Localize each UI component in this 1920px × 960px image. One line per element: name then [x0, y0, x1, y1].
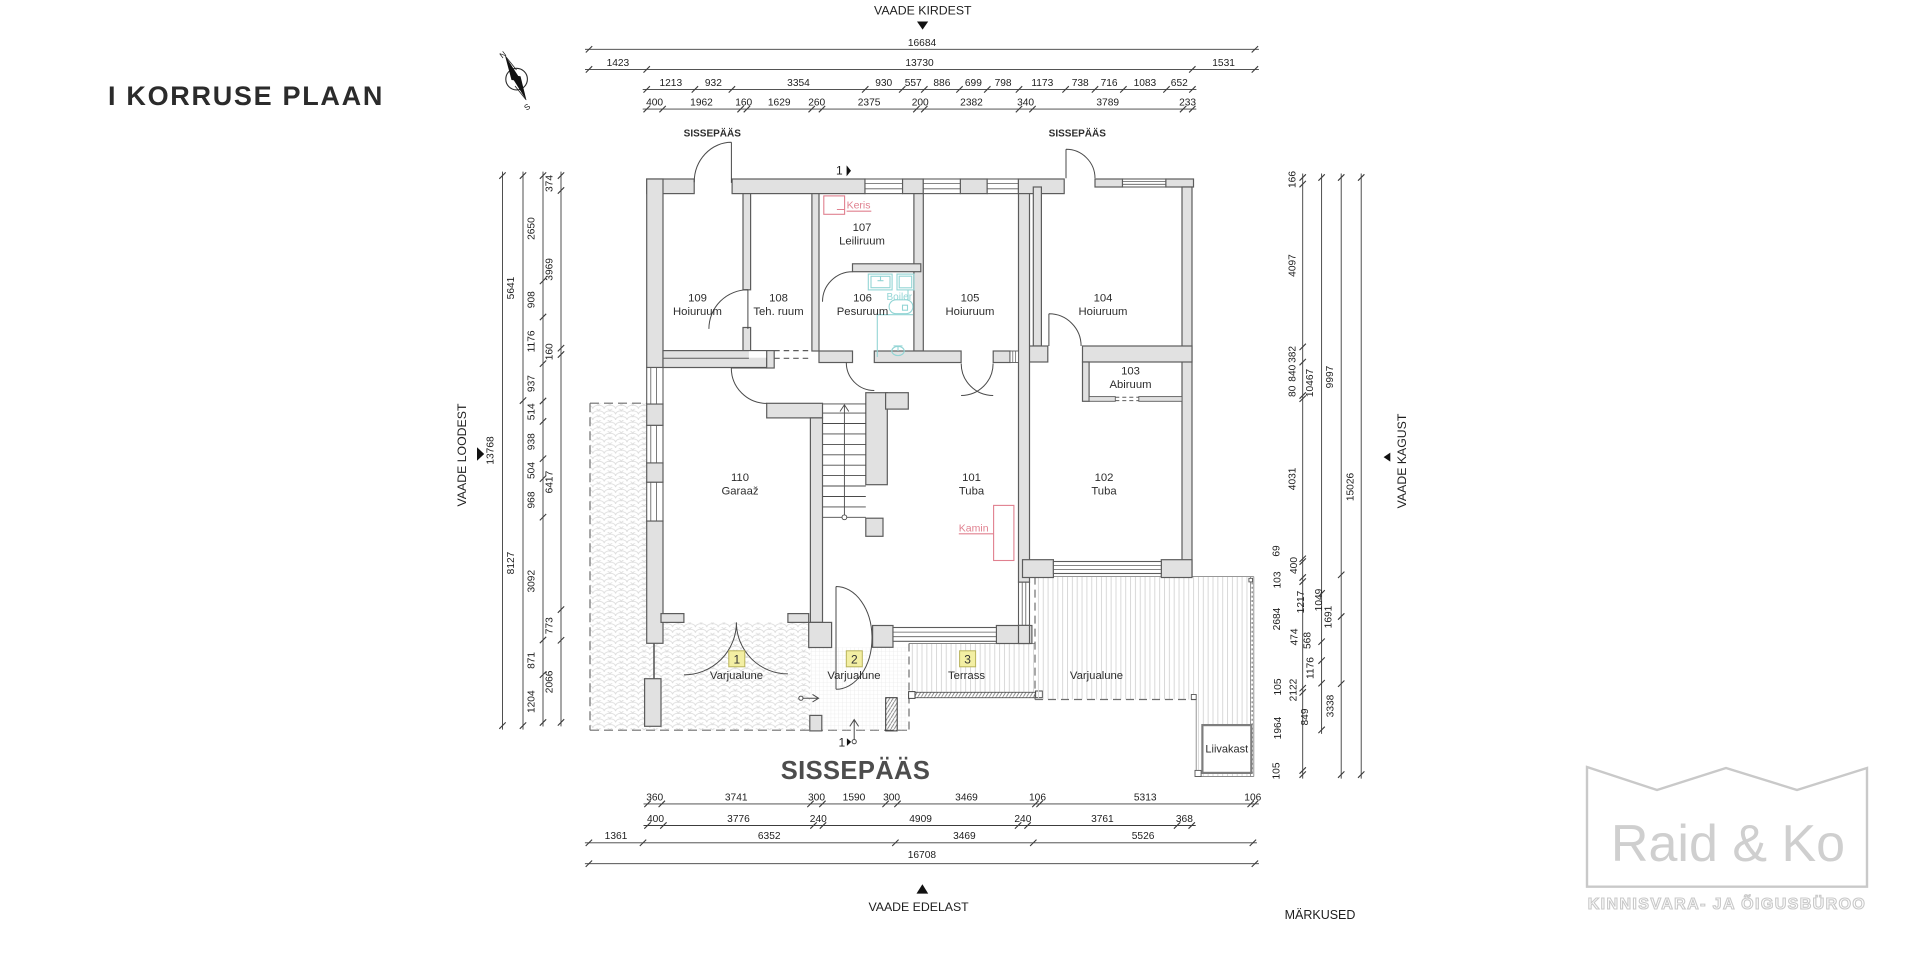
svg-text:160: 160 — [545, 343, 556, 360]
svg-text:Varjualune: Varjualune — [827, 670, 880, 682]
svg-text:VAADE KIRDEST: VAADE KIRDEST — [874, 4, 972, 18]
svg-text:Varjualune: Varjualune — [1070, 670, 1123, 682]
svg-text:2122: 2122 — [1289, 678, 1300, 701]
svg-text:240: 240 — [810, 814, 827, 825]
svg-text:Pesuruum: Pesuruum — [837, 306, 889, 318]
svg-text:Terrass: Terrass — [948, 670, 985, 682]
svg-text:908: 908 — [527, 291, 538, 308]
svg-text:382: 382 — [1288, 346, 1299, 363]
svg-text:4909: 4909 — [909, 814, 932, 825]
svg-text:504: 504 — [527, 462, 538, 479]
svg-text:368: 368 — [1176, 814, 1193, 825]
svg-text:160: 160 — [735, 98, 752, 109]
svg-text:4097: 4097 — [1288, 254, 1299, 277]
svg-text:938: 938 — [527, 433, 538, 450]
svg-text:105: 105 — [961, 293, 980, 305]
svg-text:5641: 5641 — [506, 276, 517, 299]
svg-text:1962: 1962 — [690, 98, 713, 109]
svg-text:6417: 6417 — [545, 470, 556, 493]
svg-text:Kamin: Kamin — [959, 522, 989, 534]
svg-text:1590: 1590 — [843, 792, 866, 803]
svg-text:103: 103 — [1273, 571, 1284, 588]
svg-text:106: 106 — [1244, 792, 1261, 803]
svg-text:3469: 3469 — [955, 792, 978, 803]
svg-text:Keris: Keris — [847, 199, 871, 211]
svg-text:871: 871 — [527, 652, 538, 669]
svg-text:VAADE EDELAST: VAADE EDELAST — [868, 900, 969, 914]
svg-text:Raid & Ko: Raid & Ko — [1611, 815, 1845, 873]
svg-text:S: S — [522, 102, 532, 112]
svg-text:3741: 3741 — [725, 792, 748, 803]
svg-text:937: 937 — [527, 375, 538, 392]
svg-text:400: 400 — [647, 814, 664, 825]
svg-text:798: 798 — [995, 78, 1012, 89]
svg-text:300: 300 — [808, 792, 825, 803]
svg-text:557: 557 — [905, 78, 922, 89]
svg-text:69: 69 — [1272, 545, 1283, 557]
svg-text:Abiruum: Abiruum — [1109, 379, 1151, 391]
svg-text:SISSEPÄÄS: SISSEPÄÄS — [781, 757, 931, 785]
svg-text:3092: 3092 — [527, 570, 538, 593]
svg-text:474: 474 — [1290, 628, 1301, 645]
svg-text:2382: 2382 — [960, 98, 983, 109]
svg-text:6352: 6352 — [758, 831, 781, 842]
svg-text:300: 300 — [883, 792, 900, 803]
svg-text:VAADE KAGUST: VAADE KAGUST — [1395, 413, 1409, 508]
svg-text:2684: 2684 — [1272, 607, 1283, 630]
svg-text:MÄRKUSED: MÄRKUSED — [1285, 908, 1356, 922]
svg-text:652: 652 — [1171, 78, 1188, 89]
svg-text:Tuba: Tuba — [1091, 486, 1117, 498]
svg-text:9997: 9997 — [1325, 365, 1336, 388]
svg-text:514: 514 — [527, 403, 538, 420]
svg-text:233: 233 — [1179, 98, 1196, 109]
svg-text:3: 3 — [964, 652, 971, 666]
svg-text:Boiler: Boiler — [887, 292, 913, 303]
svg-text:109: 109 — [688, 293, 707, 305]
svg-text:1176: 1176 — [1306, 657, 1317, 679]
svg-text:10467: 10467 — [1305, 369, 1316, 398]
svg-text:Leiliruum: Leiliruum — [839, 236, 885, 248]
svg-text:840: 840 — [1288, 364, 1299, 381]
svg-text:400: 400 — [646, 98, 663, 109]
svg-text:3761: 3761 — [1091, 814, 1114, 825]
svg-text:1204: 1204 — [527, 690, 538, 713]
svg-text:Garaaž: Garaaž — [721, 486, 758, 498]
svg-text:2066: 2066 — [545, 670, 556, 693]
svg-text:103: 103 — [1121, 366, 1140, 378]
svg-text:3338: 3338 — [1326, 694, 1337, 717]
svg-text:106: 106 — [853, 293, 872, 305]
svg-text:3969: 3969 — [545, 258, 556, 281]
svg-text:13730: 13730 — [905, 58, 934, 69]
svg-text:968: 968 — [527, 491, 538, 508]
svg-text:1217: 1217 — [1296, 590, 1307, 613]
svg-text:SISSEPÄÄS: SISSEPÄÄS — [1049, 127, 1107, 140]
svg-text:374: 374 — [545, 175, 556, 192]
svg-text:2: 2 — [851, 652, 858, 666]
svg-text:3469: 3469 — [953, 831, 976, 842]
svg-text:Hoiuruum: Hoiuruum — [1079, 306, 1128, 318]
svg-text:Varjualune: Varjualune — [710, 670, 763, 682]
svg-text:3776: 3776 — [727, 814, 750, 825]
svg-text:Hoiuruum: Hoiuruum — [946, 306, 995, 318]
svg-text:80: 80 — [1288, 385, 1299, 397]
svg-text:SISSEPÄÄS: SISSEPÄÄS — [684, 127, 742, 140]
svg-text:15026: 15026 — [1346, 473, 1357, 502]
svg-text:1213: 1213 — [659, 78, 682, 89]
svg-text:260: 260 — [808, 98, 825, 109]
svg-text:8127: 8127 — [506, 551, 517, 574]
svg-text:110: 110 — [731, 472, 749, 484]
svg-text:1691: 1691 — [1324, 605, 1335, 628]
svg-text:1173: 1173 — [1031, 78, 1053, 89]
svg-text:3789: 3789 — [1096, 98, 1119, 109]
svg-text:107: 107 — [853, 222, 872, 234]
svg-text:699: 699 — [965, 78, 982, 89]
svg-text:Hoiuruum: Hoiuruum — [673, 306, 722, 318]
svg-text:886: 886 — [933, 78, 950, 89]
svg-text:1176: 1176 — [527, 330, 538, 352]
svg-text:1531: 1531 — [1212, 58, 1235, 69]
svg-text:KINNISVARA- JA ÕIGUSBÜROO: KINNISVARA- JA ÕIGUSBÜROO — [1588, 893, 1867, 913]
svg-text:1083: 1083 — [1134, 78, 1157, 89]
svg-text:1: 1 — [839, 736, 846, 750]
svg-text:166: 166 — [1288, 171, 1299, 188]
svg-text:200: 200 — [912, 98, 929, 109]
svg-text:106: 106 — [1029, 792, 1046, 803]
svg-text:13768: 13768 — [486, 436, 497, 465]
svg-text:16684: 16684 — [908, 38, 937, 49]
svg-text:340: 340 — [1017, 98, 1034, 109]
svg-text:104: 104 — [1094, 293, 1113, 305]
svg-text:849: 849 — [1300, 708, 1311, 725]
svg-text:773: 773 — [545, 617, 556, 634]
svg-text:2375: 2375 — [858, 98, 881, 109]
svg-text:Tuba: Tuba — [959, 486, 985, 498]
svg-text:1629: 1629 — [768, 98, 791, 109]
svg-text:738: 738 — [1072, 78, 1089, 89]
svg-text:5313: 5313 — [1134, 792, 1157, 803]
svg-text:105: 105 — [1273, 678, 1284, 695]
svg-text:4031: 4031 — [1288, 467, 1299, 490]
svg-text:1361: 1361 — [605, 831, 628, 842]
svg-text:105: 105 — [1272, 762, 1283, 779]
svg-text:240: 240 — [1014, 814, 1031, 825]
svg-text:I KORRUSE PLAAN: I KORRUSE PLAAN — [108, 81, 384, 111]
svg-text:108: 108 — [769, 293, 788, 305]
svg-text:1: 1 — [733, 652, 740, 666]
svg-text:101: 101 — [962, 472, 981, 484]
svg-text:102: 102 — [1095, 472, 1114, 484]
svg-text:Teh. ruum: Teh. ruum — [753, 306, 803, 318]
svg-text:16708: 16708 — [908, 850, 937, 861]
svg-text:932: 932 — [705, 78, 722, 89]
svg-text:5526: 5526 — [1132, 831, 1155, 842]
svg-text:3354: 3354 — [787, 78, 810, 89]
svg-text:568: 568 — [1303, 632, 1314, 649]
svg-text:400: 400 — [1289, 557, 1300, 574]
svg-text:360: 360 — [646, 792, 663, 803]
svg-text:VAADE LOODEST: VAADE LOODEST — [455, 403, 469, 506]
svg-text:930: 930 — [875, 78, 892, 89]
svg-text:1: 1 — [836, 164, 843, 178]
svg-text:1423: 1423 — [607, 58, 630, 69]
svg-text:Liivakast: Liivakast — [1205, 744, 1248, 756]
svg-text:1964: 1964 — [1273, 716, 1284, 739]
svg-text:2650: 2650 — [527, 217, 538, 240]
svg-text:716: 716 — [1101, 78, 1118, 89]
